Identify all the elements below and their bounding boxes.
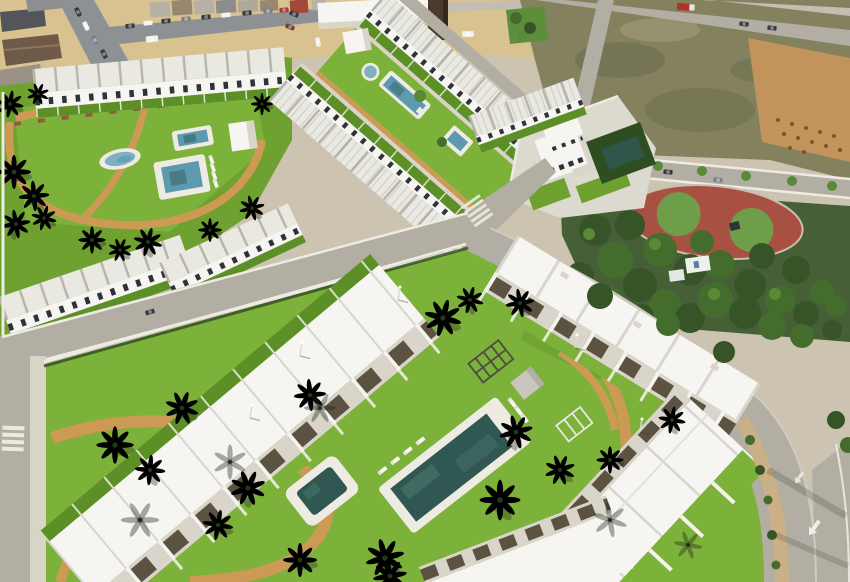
- pool-pavilion: [228, 120, 258, 151]
- small-tree: [437, 137, 447, 147]
- aerial-render: [0, 0, 850, 582]
- parked-car: [663, 169, 673, 174]
- white-van: [462, 31, 474, 37]
- street-west-edge: [0, 356, 30, 582]
- park-pine: [587, 283, 613, 309]
- small-tree: [414, 90, 426, 102]
- park-pine: [656, 312, 680, 336]
- scene-root: [0, 0, 850, 582]
- park-pine: [713, 341, 735, 363]
- sidewalk-west: [30, 356, 46, 582]
- white-van: [145, 35, 158, 42]
- garden-shed: [342, 28, 371, 54]
- parked-car: [713, 177, 723, 182]
